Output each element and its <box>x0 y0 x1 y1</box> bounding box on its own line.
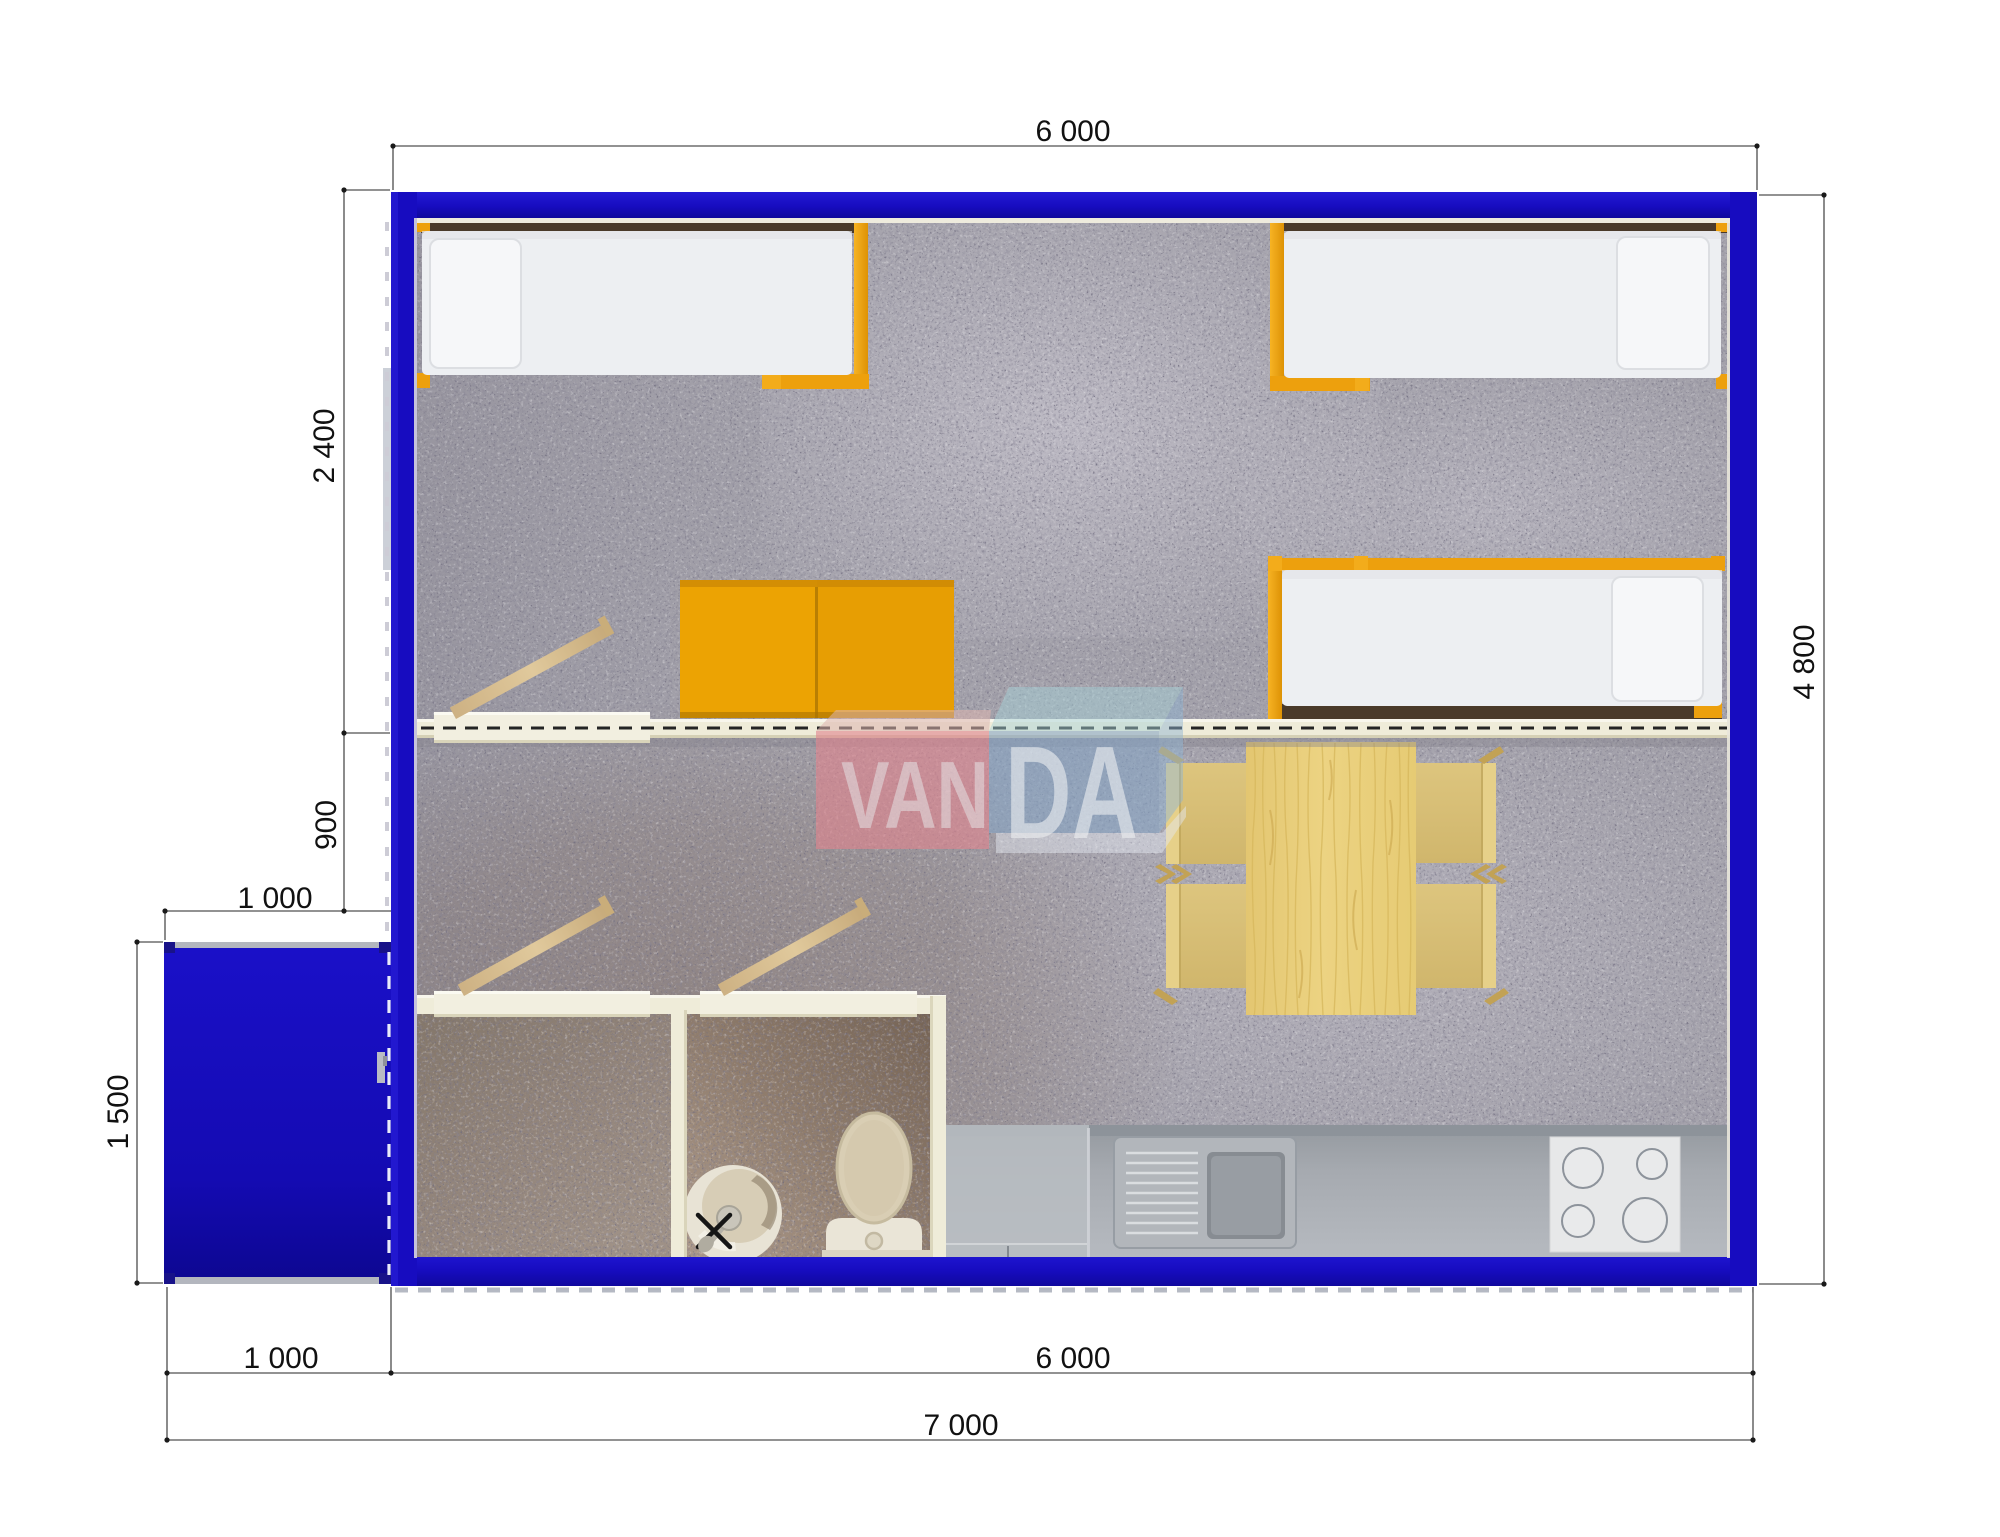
svg-text:4 800: 4 800 <box>1788 624 1821 699</box>
svg-text:1 000: 1 000 <box>237 882 312 915</box>
svg-text:7 000: 7 000 <box>923 1409 998 1442</box>
svg-text:900: 900 <box>310 800 343 850</box>
svg-text:6 000: 6 000 <box>1035 115 1110 148</box>
svg-text:1 000: 1 000 <box>243 1342 318 1375</box>
svg-text:1 500: 1 500 <box>102 1074 135 1149</box>
svg-text:6 000: 6 000 <box>1035 1342 1110 1375</box>
svg-text:VAN: VAN <box>841 742 989 849</box>
svg-text:2 400: 2 400 <box>308 408 341 483</box>
svg-text:DA: DA <box>1005 719 1138 866</box>
